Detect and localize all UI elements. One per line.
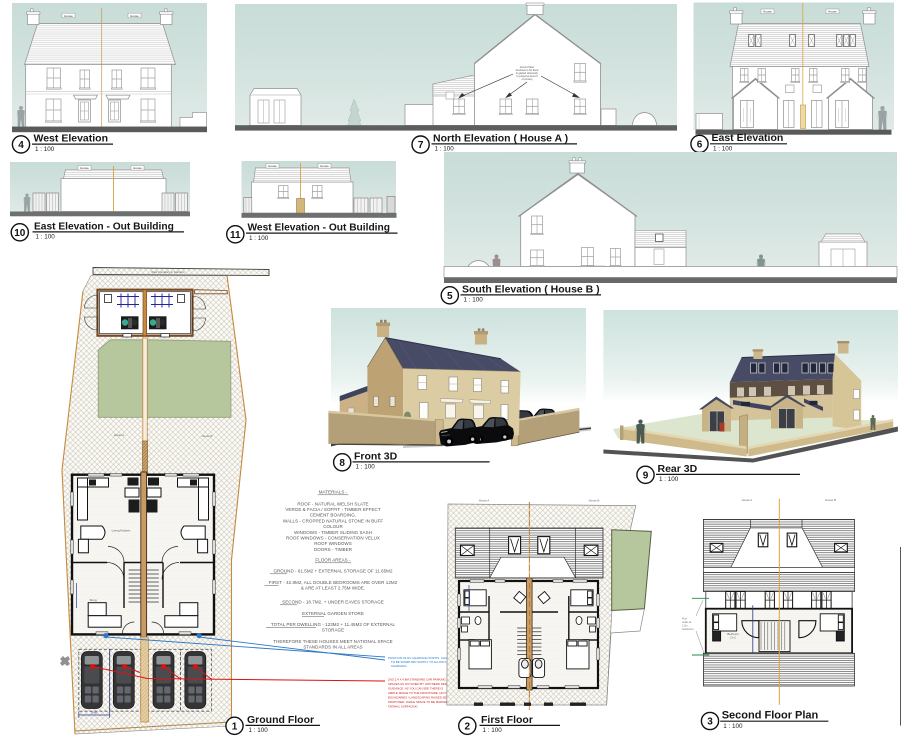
svg-text:& ARE AT LEAST 2.75M WIDE.: & ARE AT LEAST 2.75M WIDE. [301, 586, 365, 591]
svg-text:South Elevation ( House B ): South Elevation ( House B ) [462, 283, 600, 295]
svg-text:ROOF - NATURAL WELSH SLATE: ROOF - NATURAL WELSH SLATE [297, 502, 368, 507]
svg-text:WINDOWS - TIMBER SLIDING SASH: WINDOWS - TIMBER SLIDING SASH [294, 530, 372, 535]
svg-text:headroom: headroom [682, 627, 694, 631]
svg-text:FLOOR AREAS -: FLOOR AREAS - [315, 558, 351, 563]
svg-text:1 : 100: 1 : 100 [356, 464, 376, 471]
svg-text:1 : 100: 1 : 100 [249, 727, 269, 734]
svg-text:House A: House A [479, 499, 490, 503]
svg-text:Ground Floor: Ground Floor [247, 714, 314, 726]
svg-text:House A: House A [742, 498, 753, 502]
svg-text:3: 3 [707, 717, 713, 728]
svg-text:House: House [828, 10, 837, 14]
svg-text:2.4m: 2.4m [91, 711, 97, 715]
svg-text:House: House [320, 164, 329, 168]
svg-text:House: House [80, 166, 89, 170]
svg-text:Rear boundary to Gardens: Rear boundary to Gardens [151, 270, 185, 274]
svg-text:TOTAL PER DWELLING - 123M2 + 1: TOTAL PER DWELLING - 123M2 + 11.45M2 OF … [271, 622, 396, 627]
svg-text:1 : 100: 1 : 100 [483, 727, 503, 734]
svg-text:East Elevation: East Elevation [712, 132, 784, 144]
svg-text:West Elevation: West Elevation [34, 133, 109, 145]
svg-text:STORAGE: STORAGE [322, 628, 344, 633]
svg-text:1 : 100: 1 : 100 [35, 146, 55, 153]
svg-text:9: 9 [643, 470, 649, 481]
svg-text:COLOUR: COLOUR [323, 524, 343, 529]
svg-text:North Elevation ( House A ): North Elevation ( House A ) [433, 132, 568, 144]
svg-text:Front 3D: Front 3D [354, 450, 398, 462]
svg-text:1 : 100: 1 : 100 [713, 146, 733, 153]
svg-text:7: 7 [418, 140, 424, 151]
svg-text:10: 10 [14, 228, 26, 239]
svg-text:GUIDANCE. AS YOU CAN SEE THERE: GUIDANCE. AS YOU CAN SEE THERE IS [388, 687, 443, 691]
svg-text:EXTERNAL GARDEN STORE: EXTERNAL GARDEN STORE [302, 611, 364, 616]
svg-text:Flue: Flue [682, 617, 688, 621]
svg-text:WALLS - CROPPED NATURAL STONE: WALLS - CROPPED NATURAL STONE IN BUFF [283, 519, 384, 524]
svg-text:House B: House B [202, 434, 213, 438]
svg-text:CEMENT BOARDING.: CEMENT BOARDING. [310, 512, 356, 517]
svg-text:SECOND - 18.7M2. + UNDER EAVES: SECOND - 18.7M2. + UNDER EAVES STORAGE [282, 600, 384, 605]
svg-text:ROOF WINDOWS - CONSERVATION VE: ROOF WINDOWS - CONSERVATION VELUX [286, 536, 380, 541]
svg-text:Rear 3D: Rear 3D [658, 463, 698, 475]
svg-text:House: House [133, 166, 142, 170]
svg-text:ROOF WINDOWS: ROOF WINDOWS [314, 541, 352, 546]
svg-text:6: 6 [697, 140, 703, 151]
svg-text:1: 1 [232, 721, 238, 732]
svg-text:Bedroom: Bedroom [727, 632, 739, 636]
svg-text:STANDARDS IN ALL AREAS: STANDARDS IN ALL AREAS [303, 645, 362, 650]
svg-text:12m2: 12m2 [730, 637, 737, 640]
svg-text:4: 4 [18, 140, 24, 151]
svg-text:outlet at: outlet at [682, 620, 692, 624]
svg-text:Snug: Snug [89, 598, 96, 602]
svg-text:House: House [268, 164, 277, 168]
svg-text:1 : 100: 1 : 100 [36, 234, 56, 241]
svg-text:2: 2 [465, 721, 471, 732]
svg-text:VERGE & FACIA / SOFFIT - TIMBE: VERGE & FACIA / SOFFIT - TIMBER EFFECT [285, 507, 380, 512]
svg-text:1.5m: 1.5m [682, 624, 688, 628]
svg-text:First Floor: First Floor [481, 714, 533, 726]
svg-text:House: House [763, 10, 772, 14]
svg-text:1 : 100: 1 : 100 [464, 297, 484, 304]
svg-text:East Elevation - Out Building: East Elevation - Out Building [34, 221, 174, 232]
svg-text:House B: House B [825, 498, 836, 502]
svg-text:SPACES AS OUTLINED BY GWYNEDD: SPACES AS OUTLINED BY GWYNEDD DESIGN [388, 682, 452, 686]
svg-text:1 : 100: 1 : 100 [659, 476, 679, 483]
svg-text:GROUND - 61.5M2 + EXTERNAL STO: GROUND - 61.5M2 + EXTERNAL STORAGE OF 11… [273, 569, 393, 574]
svg-text:PROPOSED. WHILE SPACE TO BE MA: PROPOSED. WHILE SPACE TO BE MARKED IN [388, 700, 452, 704]
svg-text:1 : 100: 1 : 100 [249, 235, 269, 242]
svg-text:FIRST - 42.8M2, ALL DOUBLE BED: FIRST - 42.8M2, ALL DOUBLE BEDROOMS ARE … [269, 580, 398, 585]
svg-text:CHARGING: CHARGING [391, 664, 407, 668]
svg-text:1 : 100: 1 : 100 [435, 146, 455, 153]
svg-text:West Elevation - Out Building: West Elevation - Out Building [248, 223, 390, 234]
svg-text:1 : 100: 1 : 100 [723, 723, 743, 730]
svg-text:TARMAC SURFACING: TARMAC SURFACING [388, 705, 418, 709]
svg-text:5: 5 [447, 291, 453, 302]
svg-text:House A: House A [114, 433, 125, 437]
svg-text:11: 11 [230, 230, 241, 241]
svg-text:House: House [64, 14, 73, 18]
svg-text:Living Kitchen: Living Kitchen [112, 529, 131, 533]
svg-text:House B: House B [589, 499, 600, 503]
svg-text:THEREFORE THESE HOUSES MEET NA: THEREFORE THESE HOUSES MEET NATIONAL SPA… [273, 639, 392, 644]
svg-text:of privacy: of privacy [521, 77, 533, 81]
svg-text:Second Floor Plan: Second Floor Plan [722, 710, 819, 722]
svg-text:8: 8 [339, 458, 345, 469]
svg-text:DOORS - TIMBER: DOORS - TIMBER [314, 547, 353, 552]
svg-text:2NO 2.4 X 4.8M STANDARD CAR PA: 2NO 2.4 X 4.8M STANDARD CAR PARKING [388, 678, 446, 682]
svg-text:MATERIALS -: MATERIALS - [319, 490, 348, 495]
svg-text:House: House [130, 14, 139, 18]
